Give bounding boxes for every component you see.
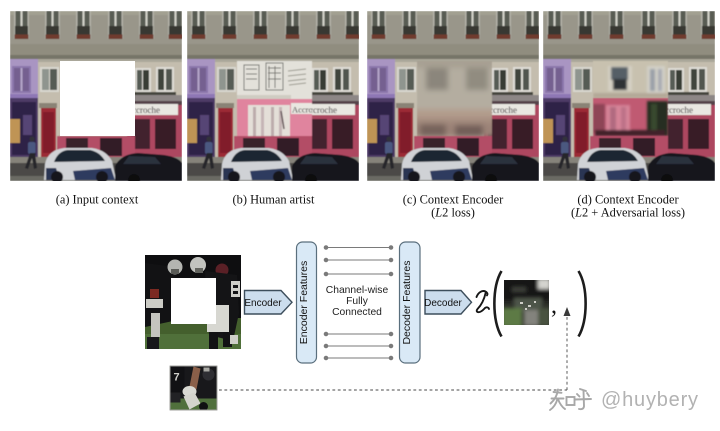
svg-text:Decoder Features: Decoder Features — [401, 260, 413, 344]
svg-text:Channel-wise: Channel-wise — [326, 285, 389, 296]
svg-text:(c) Context Encoder: (c) Context Encoder — [403, 193, 504, 207]
svg-text:,: , — [551, 293, 557, 319]
svg-text:(L2 + Adversarial loss): (L2 + Adversarial loss) — [571, 206, 685, 220]
svg-text:Decoder: Decoder — [424, 298, 462, 309]
svg-text:Encoder Features: Encoder Features — [298, 261, 310, 344]
svg-text:(a) Input context: (a) Input context — [56, 193, 139, 207]
svg-text:(d) Context Encoder: (d) Context Encoder — [577, 193, 679, 207]
svg-text:Connected: Connected — [332, 307, 382, 318]
svg-text:@huybery: @huybery — [601, 389, 699, 411]
svg-text:7: 7 — [174, 372, 180, 384]
svg-text:(L2 loss): (L2 loss) — [431, 206, 475, 220]
svg-text:Encoder: Encoder — [244, 298, 282, 309]
svg-text:Fully: Fully — [346, 296, 369, 307]
svg-text:(b) Human artist: (b) Human artist — [233, 193, 315, 207]
